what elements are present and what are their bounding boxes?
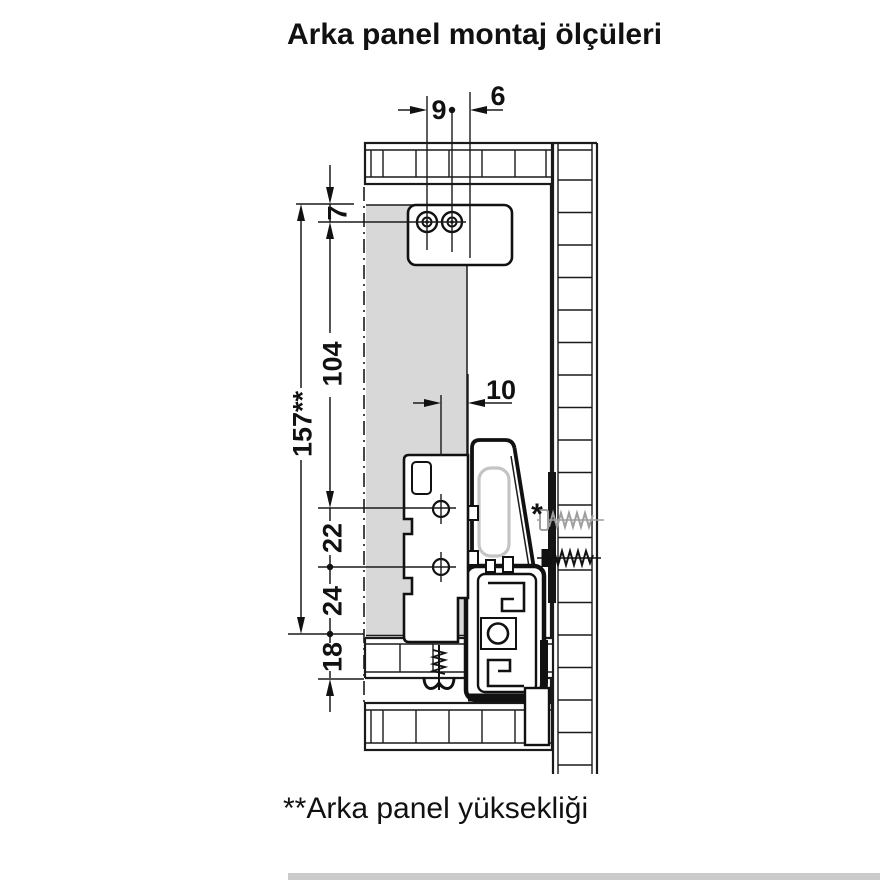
dim-label-10: 10: [486, 375, 516, 405]
dim-label-22: 22: [317, 523, 347, 553]
dim-label-157: 157**: [287, 390, 317, 457]
rail-slot: [479, 468, 509, 556]
drawer-top-panel: [365, 143, 552, 184]
cabinet-back-panel: [553, 143, 597, 774]
rail-back-strip: [548, 472, 556, 603]
dim-label-18: 18: [317, 642, 347, 672]
diagram-title: Arka panel montaj ölçüleri: [287, 18, 662, 51]
top-mounting-plate: [408, 205, 512, 265]
dim-label-9: 9: [431, 95, 446, 125]
alt-fixing-screw-icon: [537, 510, 604, 530]
dim-label-7: 7: [322, 205, 352, 220]
dim-label-6: 6: [490, 81, 505, 111]
diagram-footnote: **Arka panel yüksekliği: [283, 792, 588, 825]
slide-profile-box: [466, 557, 544, 700]
dim-label-24: 24: [317, 586, 347, 616]
technical-drawing: *: [0, 0, 880, 880]
dim-label-104: 104: [317, 341, 347, 386]
diagram-page: { "title": "Arka panel montaj ölçüleri",…: [0, 0, 880, 880]
asterisk-marker: *: [531, 498, 543, 531]
horizontal-scrollbar[interactable]: [288, 873, 880, 880]
rail-rear-foot: [525, 688, 549, 745]
roller-icon: [488, 624, 508, 644]
